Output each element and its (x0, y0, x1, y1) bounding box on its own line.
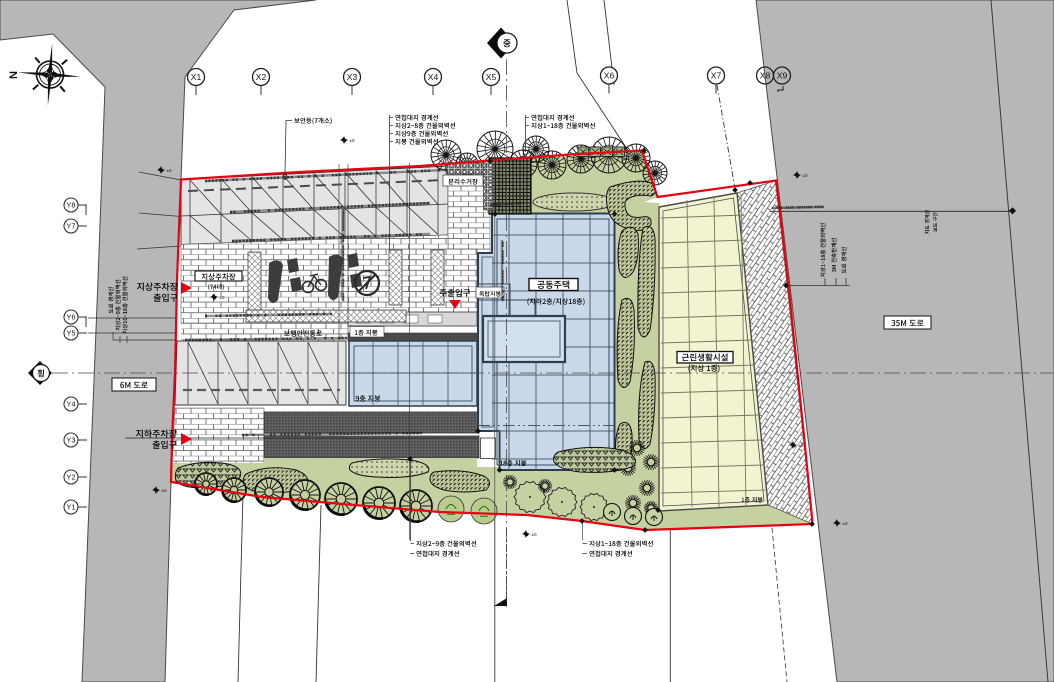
svg-text:±0: ±0 (167, 168, 172, 173)
svg-text:±0: ±0 (803, 173, 808, 178)
svg-text:Y3: Y3 (66, 436, 75, 445)
svg-text:Y8: Y8 (66, 201, 75, 210)
svg-text:X1: X1 (191, 72, 202, 82)
svg-text:±0: ±0 (799, 443, 804, 448)
svg-text:±0: ±0 (532, 532, 537, 537)
svg-text:Y7: Y7 (66, 222, 75, 231)
svg-text:X7: X7 (711, 71, 722, 81)
svg-text:X9: X9 (777, 71, 788, 81)
svg-text:Y2: Y2 (66, 473, 75, 482)
svg-text:X5: X5 (486, 72, 497, 82)
svg-text:±0: ±0 (162, 488, 167, 493)
svg-text:±0: ±0 (220, 295, 225, 300)
svg-text:X6: X6 (604, 71, 615, 81)
svg-text:±0: ±0 (843, 521, 848, 526)
svg-text:X3: X3 (347, 72, 358, 82)
svg-text:Y5: Y5 (66, 329, 75, 338)
svg-text:Y4: Y4 (66, 400, 75, 409)
svg-text:N: N (8, 71, 20, 79)
svg-text:X4: X4 (428, 72, 439, 82)
svg-text:Y1: Y1 (66, 503, 75, 512)
svg-text:X8: X8 (760, 71, 771, 81)
svg-text:Y6: Y6 (66, 313, 75, 322)
svg-text:±0: ±0 (350, 138, 355, 143)
svg-text:X2: X2 (256, 72, 267, 82)
